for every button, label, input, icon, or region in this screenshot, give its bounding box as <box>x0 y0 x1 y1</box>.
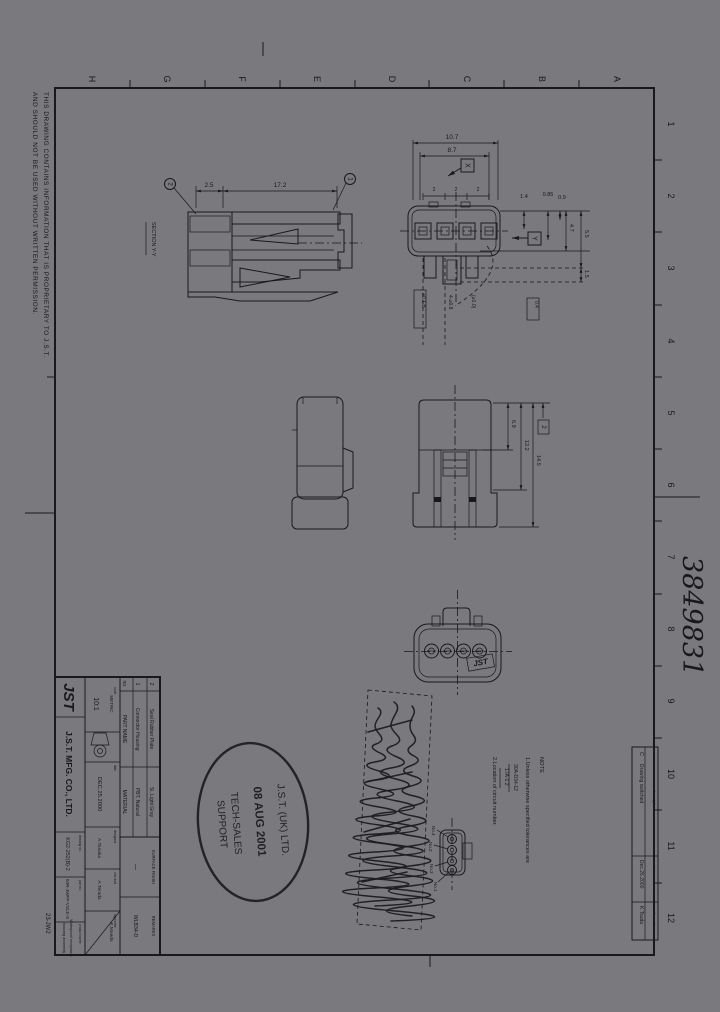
grid-number: 2 <box>666 193 676 198</box>
proprietary-line-2: AND SHOULD NOT BE USED WITHOUT WRITTEN P… <box>31 92 38 315</box>
grid-number: 7 <box>666 554 676 559</box>
circuit-label: No.2 <box>428 842 433 852</box>
parts-header-material: MATERIAL <box>121 790 127 815</box>
rear-view: JST <box>404 590 512 695</box>
section-datum-y: Y <box>531 236 538 241</box>
grid-ticks-top <box>130 80 579 88</box>
title-date-label: date <box>113 765 117 771</box>
projection-symbol <box>91 733 109 757</box>
grid-letter: D <box>387 76 397 83</box>
part-row-material: PBT, Natural <box>134 788 140 816</box>
note-ref-2: 17A-1.2 <box>503 768 509 786</box>
grid-letter: F <box>237 76 247 82</box>
grid-letter: E <box>312 76 322 82</box>
grid-number: 1 <box>666 121 676 126</box>
front-dim-f: 1.5 <box>583 270 589 278</box>
front-pitch-dim: 2 <box>477 187 480 193</box>
designed-label: designed <box>113 830 117 843</box>
part-row-no: 2 <box>148 683 154 686</box>
part-row-name: Seal Rubber Plate <box>148 709 154 750</box>
drawing-no-label: drawing no. <box>78 835 82 852</box>
front-pitch-dim: 2 <box>433 187 436 193</box>
revision-name-label: confirmed <box>652 906 657 924</box>
handwritten-note-box <box>343 690 435 930</box>
revision-date: Dec.26.2000 <box>638 860 644 889</box>
revision-name: K.Tsuda <box>638 906 644 924</box>
top-dim-a: 6.9 <box>510 420 516 428</box>
top-dim-ref: 2 <box>540 425 546 429</box>
grid-letter: H <box>87 76 97 83</box>
parts-table: no. PART NAME MATERIAL 1 Connector Housi… <box>120 677 160 837</box>
part-row-material: Si, Light Gray <box>148 787 154 818</box>
grid-number: 11 <box>666 841 676 850</box>
front-dim-g: 0.4 <box>533 301 539 308</box>
margin-form-code: 23-JW2 <box>44 913 50 934</box>
front-dim-d: 4.7 <box>568 224 574 232</box>
grid-numbers: 1 2 3 4 5 6 7 8 9 10 11 12 <box>666 121 676 923</box>
front-position-tolerance: ⌀0.1 B <box>420 293 426 308</box>
front-hole-dim: 4-⌀0.8 <box>447 295 453 310</box>
centering-marks <box>25 42 700 967</box>
revision-description-label: description <box>652 790 657 809</box>
approved-label: approved <box>113 914 117 928</box>
engineering-drawing-canvas: H G F E D C B A 1 2 3 4 5 6 7 8 9 10 11 … <box>0 0 720 1012</box>
front-dim-a: 1.4 <box>520 194 528 200</box>
jst-logo: JST <box>60 683 77 712</box>
remarks-label: REMARKS <box>151 916 156 937</box>
scale-label: scale <box>113 687 117 695</box>
title-date-value: DEC.25.2000 <box>96 777 102 812</box>
front-dim-e: 5.5 <box>583 230 589 238</box>
part-no-value: 04R-JWPF-VSLE-S <box>65 879 70 919</box>
scale-value: 10:1 <box>92 697 99 711</box>
stamp-dept-line-1: TECH-SALES <box>228 792 243 856</box>
circuit-label: No.4 <box>431 826 436 836</box>
front-dim-c: 0.9 <box>558 195 566 201</box>
revision-description: Drawing switched <box>638 764 644 803</box>
surface-finish-label: SURFACE FINISH <box>151 850 156 885</box>
circuit-label: No.3 <box>429 864 434 874</box>
title-block: no. PART NAME MATERIAL 1 Connector Housi… <box>55 677 160 957</box>
parts-header-name: PART NAME <box>121 715 127 744</box>
notes-block: NOTE 1.Unless otherwise specified tolera… <box>491 757 544 863</box>
approval-stamp: J.S.T. (UK) LTD. 08 AUG 2001 TECH-SALES … <box>193 739 314 904</box>
proprietary-notice: THIS DRAWING CONTAINS INFORMATION THAT I… <box>31 92 49 358</box>
part-row-no: 1 <box>134 683 140 686</box>
molded-jst-logo: JST <box>473 657 490 669</box>
front-dim-inner-width: 8.7 <box>447 147 456 154</box>
grid-number: 6 <box>666 482 676 487</box>
grid-number: 10 <box>666 769 676 779</box>
rear-cavities <box>425 644 487 658</box>
sheet-border: H G F E D C B A 1 2 3 4 5 6 7 8 9 10 11 … <box>25 42 707 967</box>
parts-header-no: no. <box>121 681 127 688</box>
front-hole-dim-2: (⌀1.0) <box>470 295 476 309</box>
part-row-name: Connector Housing <box>134 708 140 751</box>
front-pitch-dim: 2 <box>455 187 458 193</box>
note-ref-1: 30A-D34-12 <box>512 764 518 791</box>
remarks-value: WLB34-D <box>132 915 138 938</box>
proprietary-line-1: THIS DRAWING CONTAINS INFORMATION THAT I… <box>42 92 49 358</box>
revision-date-label: date <box>652 866 657 875</box>
section-datum-x: X <box>464 163 471 168</box>
drawing-no-value: KG2-252(B)-2 <box>64 837 70 871</box>
note-line-2: 2.Location of circuit number. <box>491 757 497 826</box>
handwritten-number: 3849831 <box>676 556 707 676</box>
part-no-label: part no. <box>78 880 82 891</box>
note-title: NOTE <box>538 757 544 773</box>
top-dim-c: 14.5 <box>535 455 541 466</box>
stamp-dept-line-2: SUPPORT <box>214 800 228 849</box>
grid-letter: A <box>612 76 622 82</box>
grid-letter: C <box>462 76 472 83</box>
product-name-label: product name <box>78 924 82 944</box>
section-view: 2.5 17.2 2 1 SECTION Y-Y <box>146 174 362 302</box>
stamp-company: J.S.T. (UK) LTD. <box>274 784 290 857</box>
circuit-number-view: No.4 No.2 No.3 No.1 <box>428 818 472 892</box>
scanned-drawing-page: H G F E D C B A 1 2 3 4 5 6 7 8 9 10 11 … <box>0 0 720 1012</box>
grid-number: 3 <box>666 265 676 270</box>
revision-rev-value: C <box>638 752 644 756</box>
section-dim-seal: 2.5 <box>204 182 213 189</box>
surface-finish-value: — <box>132 864 138 870</box>
side-view <box>292 397 353 529</box>
product-name-line-1: Waterproof receptacle <box>69 919 73 956</box>
company-name: J.S.T. MFG. CO., LTD. <box>64 731 74 817</box>
grid-letter: B <box>537 76 547 82</box>
section-view-label: SECTION Y-Y <box>150 222 156 257</box>
grid-number: 9 <box>666 698 676 703</box>
product-name-line-2: housing assembly <box>62 923 66 953</box>
top-dim-b: 12.2 <box>523 440 529 451</box>
molded-logo-box: JST <box>467 654 495 671</box>
grid-number: 12 <box>666 913 676 923</box>
front-dim-width: 10.7 <box>446 134 459 141</box>
front-dim-b: 0.85 <box>543 192 554 198</box>
stamp-date: 08 AUG 2001 <box>251 786 268 857</box>
front-view: 10.7 8.7 2 2 2 X Y 1.4 0.85 0.9 4.7 5.5 … <box>400 134 590 345</box>
designed-value: A.Tanaka <box>96 838 102 858</box>
checked-label: checked <box>113 872 117 884</box>
revision-rev-label: rev <box>652 752 657 758</box>
grid-number: 8 <box>666 626 676 631</box>
balloon-seal-plate: 2 <box>166 182 173 186</box>
circuit-label: No.1 <box>433 882 438 892</box>
note-line-1: 1.Unless otherwise specified tolerances … <box>524 757 530 863</box>
grid-number: 4 <box>666 338 676 343</box>
top-view: 6.9 12.2 14.5 2 <box>413 385 550 540</box>
section-dim-length: 17.2 <box>274 182 287 189</box>
checked-value: A.Terada <box>96 880 102 900</box>
grid-number: 5 <box>666 410 676 415</box>
unit-value: METRIC <box>109 695 114 713</box>
grid-letter: G <box>162 75 172 82</box>
balloon-housing: 1 <box>346 177 353 181</box>
